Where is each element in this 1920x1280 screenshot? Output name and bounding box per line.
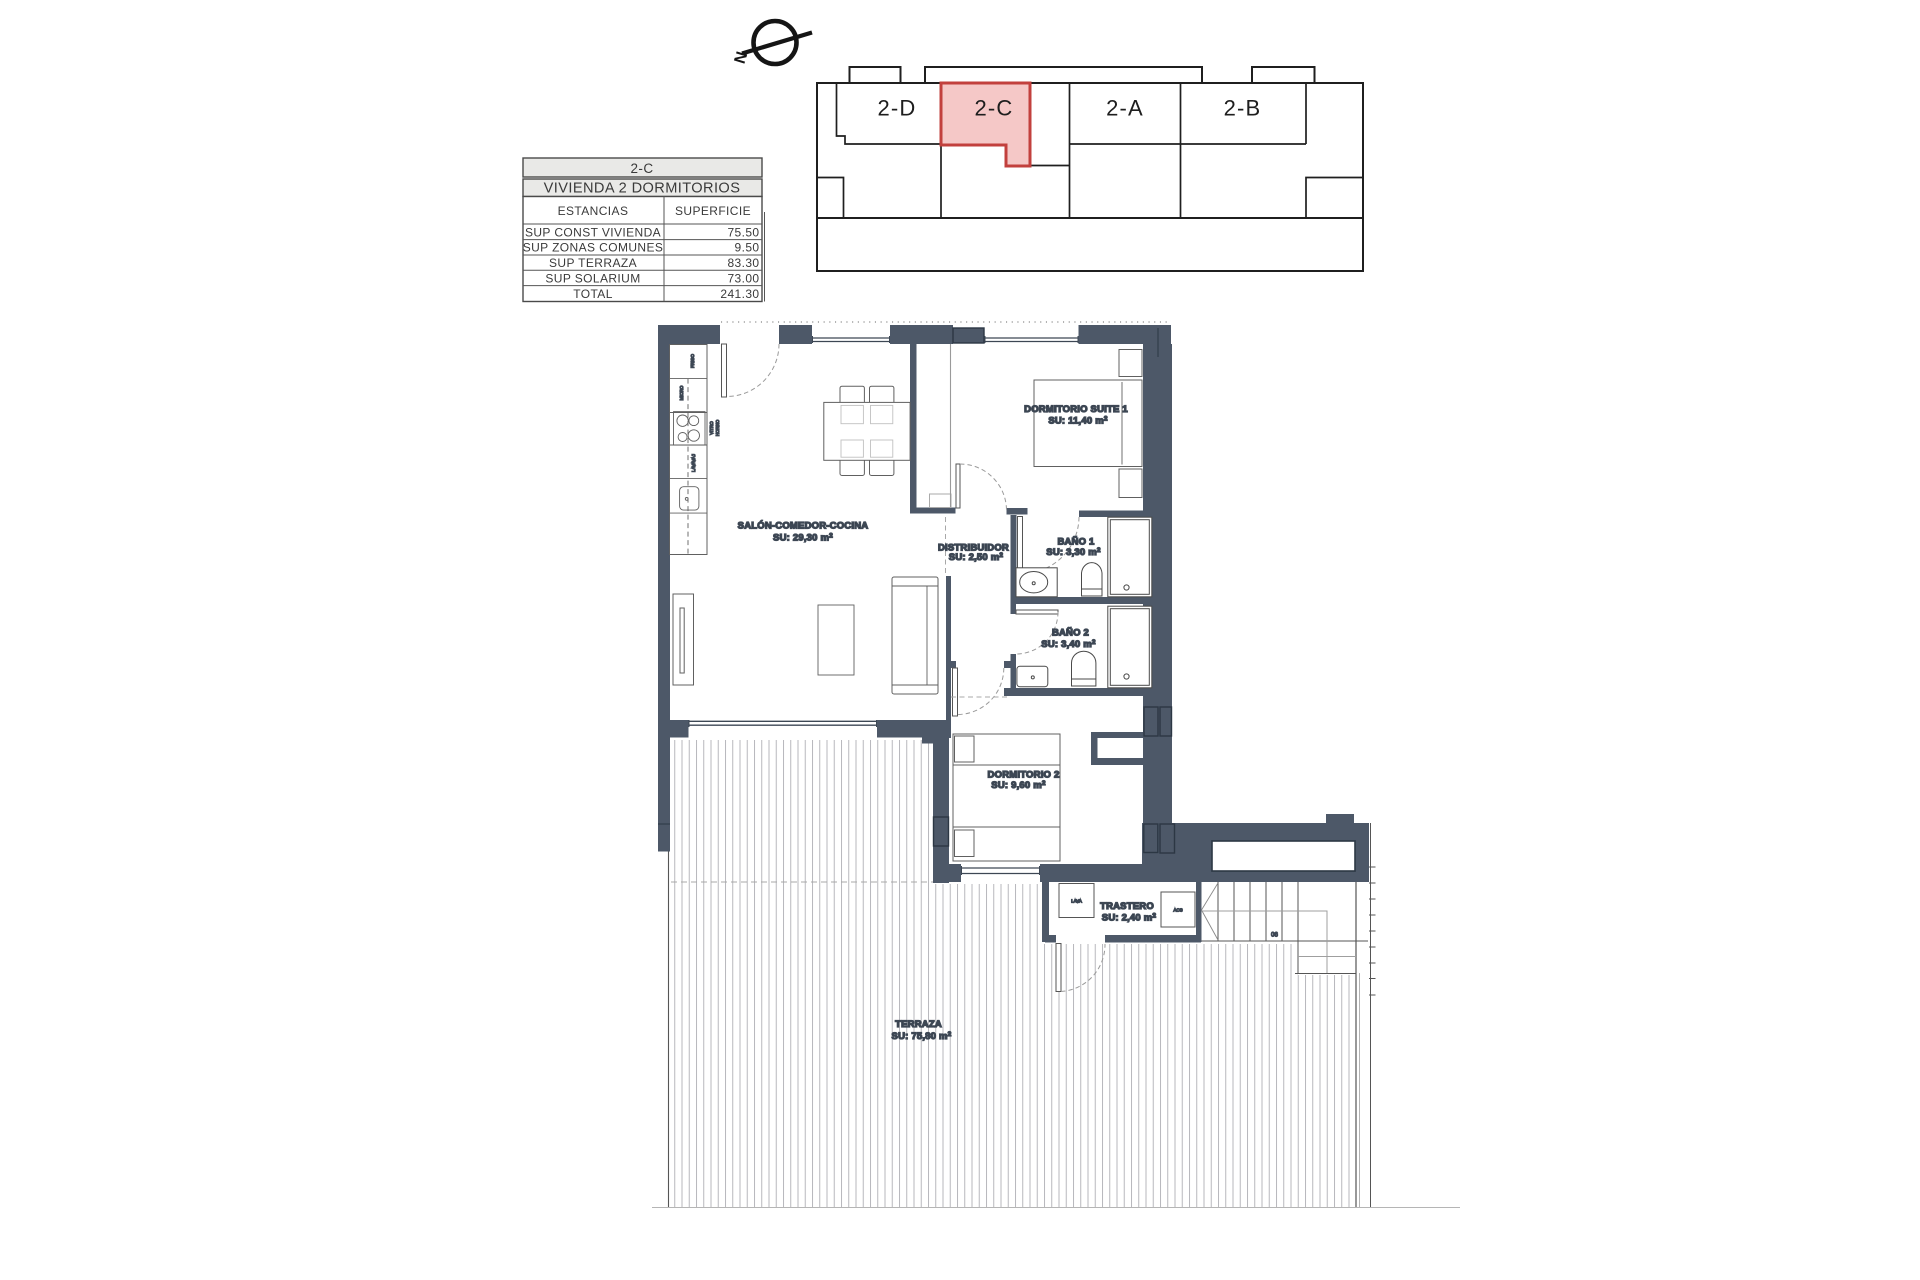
- svg-text:MICRO: MICRO: [679, 385, 684, 400]
- svg-text:SU: 3,30 m2: SU: 3,30 m2: [1046, 547, 1101, 558]
- svg-text:ESTANCIAS: ESTANCIAS: [558, 204, 629, 218]
- svg-text:SU: 11,40 m2: SU: 11,40 m2: [1048, 416, 1108, 427]
- svg-text:75.50: 75.50: [727, 225, 759, 239]
- svg-text:SU: 2,40 m2: SU: 2,40 m2: [1102, 913, 1157, 924]
- svg-text:BAÑO 1: BAÑO 1: [1057, 537, 1095, 548]
- svg-text:2-C: 2-C: [631, 161, 654, 176]
- svg-text:2-C: 2-C: [974, 96, 1013, 121]
- svg-text:SU: 2,50 m2: SU: 2,50 m2: [949, 552, 1004, 563]
- svg-text:LAVAVAJ: LAVAVAJ: [691, 454, 696, 472]
- svg-text:FRIGO: FRIGO: [690, 353, 695, 367]
- svg-text:SALÓN-COMEDOR-COCINA: SALÓN-COMEDOR-COCINA: [738, 520, 869, 532]
- svg-text:241.30: 241.30: [720, 287, 759, 301]
- svg-text:SUP TERRAZA: SUP TERRAZA: [549, 256, 637, 270]
- svg-text:SUP CONST VIVIENDA: SUP CONST VIVIENDA: [525, 225, 661, 239]
- svg-text:SUPERFICIE: SUPERFICIE: [675, 204, 751, 218]
- svg-text:SU: 75,80 m2: SU: 75,80 m2: [892, 1031, 952, 1042]
- svg-text:2-D: 2-D: [877, 96, 916, 121]
- svg-text:9.50: 9.50: [735, 241, 760, 255]
- svg-text:VIVIENDA 2 DORMITORIOS: VIVIENDA 2 DORMITORIOS: [544, 181, 741, 197]
- svg-text:BAÑO 2: BAÑO 2: [1052, 628, 1089, 639]
- svg-text:ACS: ACS: [1173, 908, 1182, 913]
- svg-text:LAVA: LAVA: [1071, 899, 1082, 904]
- svg-text:VITRO: VITRO: [709, 421, 714, 435]
- svg-text:83.30: 83.30: [727, 256, 759, 270]
- svg-text:SUP ZONAS COMUNES: SUP ZONAS COMUNES: [523, 241, 664, 255]
- svg-text:DORMITORIO SUITE 1: DORMITORIO SUITE 1: [1024, 404, 1128, 415]
- svg-text:06: 06: [1271, 933, 1278, 939]
- svg-text:2-B: 2-B: [1224, 96, 1262, 121]
- svg-text:SU: 9,60 m2: SU: 9,60 m2: [991, 780, 1046, 791]
- svg-text:TOTAL: TOTAL: [573, 287, 613, 301]
- svg-text:2-A: 2-A: [1106, 96, 1144, 121]
- svg-text:TERRAZA: TERRAZA: [895, 1019, 942, 1030]
- svg-text:SUP SOLARIUM: SUP SOLARIUM: [545, 271, 640, 285]
- svg-text:DORMITORIO 2: DORMITORIO 2: [988, 770, 1060, 781]
- svg-text:TRASTERO: TRASTERO: [1100, 901, 1154, 912]
- svg-text:SU: 29,30 m2: SU: 29,30 m2: [773, 533, 833, 544]
- svg-text:SU: 3,40 m2: SU: 3,40 m2: [1041, 639, 1096, 650]
- svg-text:73.00: 73.00: [727, 271, 759, 285]
- svg-text:HORNO: HORNO: [715, 419, 720, 436]
